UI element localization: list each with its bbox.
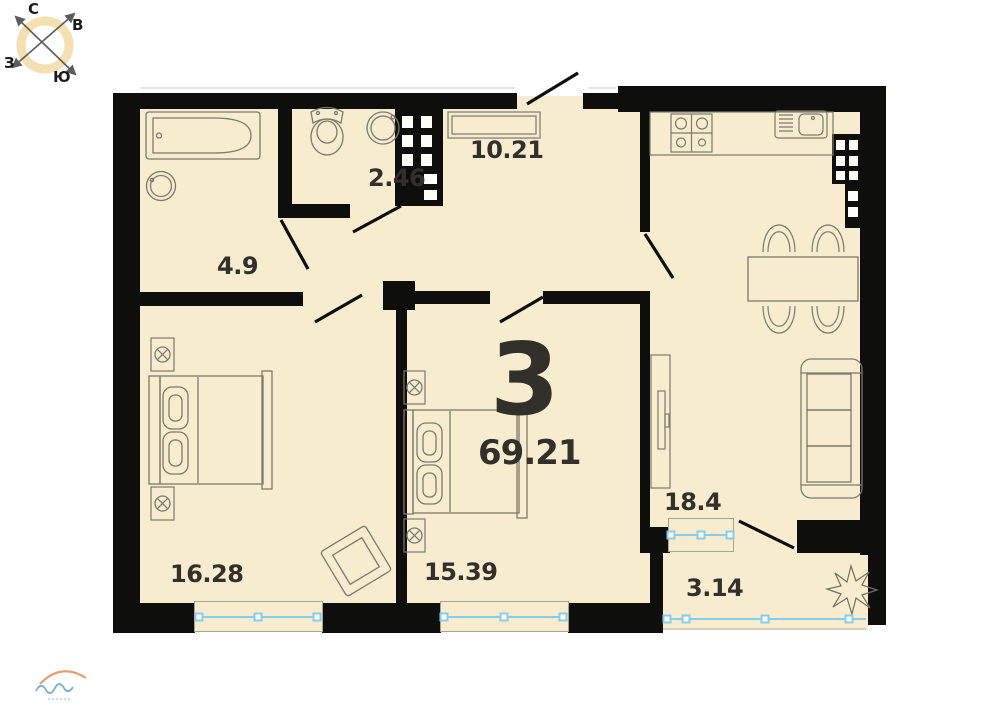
entrance-doorway-floor (517, 96, 583, 110)
vent-shaft-cell (848, 191, 858, 201)
compass-arrows-icon (4, 2, 100, 94)
compass-west-label: З (4, 54, 15, 72)
vent-shaft-cell (402, 135, 413, 147)
vent-shaft-cell (836, 140, 845, 150)
wall-outer-left (113, 93, 140, 633)
window-sill-living (668, 518, 734, 552)
vent-shaft-cell (849, 140, 858, 150)
vent-shaft-cell (424, 174, 437, 184)
wall-outer-bottom (568, 603, 663, 633)
wall-outer-top (113, 93, 517, 109)
vent-shaft-cell (421, 135, 432, 147)
wall-bedroom-divider (396, 310, 407, 603)
vent-shaft-cell (849, 156, 858, 166)
compass-rose: С В З Ю (4, 2, 100, 94)
wall-balcony-left (650, 550, 663, 633)
wall-toilet-bottom (278, 204, 350, 218)
watermark-logo-icon (28, 658, 104, 706)
area-label-hallway: 10.21 (470, 136, 543, 164)
wall-hallway-bedroom2 (415, 291, 490, 304)
vent-shaft-cell (421, 116, 432, 128)
parapet-line (588, 87, 616, 89)
area-label-living: 18.4 (664, 488, 721, 516)
area-label-bedroom1: 16.28 (170, 560, 243, 588)
vent-shaft-cell (402, 116, 413, 128)
compass-south-label: Ю (53, 68, 71, 86)
rooms-count: 3 (490, 341, 560, 419)
area-label-toilet: 2.46 (368, 164, 425, 192)
area-label-bedroom2: 15.39 (424, 558, 497, 586)
wall-bathroom-toilet (278, 108, 292, 218)
watermark-logo (28, 658, 104, 706)
wall-hallway-living (543, 291, 650, 304)
total-area: 69.21 (478, 433, 581, 473)
wall-outer-bottom (113, 603, 195, 633)
wall-outer-top-stub (583, 93, 618, 109)
window-sill-bedroom1 (194, 601, 323, 632)
wall-outer-bottom (322, 603, 441, 633)
vent-shaft-cell (848, 207, 858, 217)
vent-shaft-cell (849, 171, 858, 180)
wall-bathroom-bedroom (140, 292, 303, 306)
compass-north-label: С (28, 0, 39, 18)
wall-hallway-kitchen (640, 108, 650, 232)
parapet-line (140, 87, 515, 89)
wall-outer-right (860, 86, 886, 555)
area-label-balcony: 3.14 (686, 574, 743, 602)
vent-shaft-cell (836, 156, 845, 166)
wall-column (383, 281, 415, 310)
vent-shaft-cell (424, 190, 437, 200)
window-sill-bedroom2 (440, 601, 569, 632)
area-label-bathroom: 4.9 (217, 252, 258, 280)
wall-living-bottom-right (797, 520, 860, 553)
wall-outer-top-kitchen (618, 86, 860, 112)
wall-balcony-right (868, 555, 886, 625)
compass-east-label: В (72, 16, 83, 34)
vent-shaft-cell (836, 171, 845, 180)
wall-living-left (640, 292, 650, 550)
floor-plan-page: С В З Ю (0, 0, 1000, 708)
